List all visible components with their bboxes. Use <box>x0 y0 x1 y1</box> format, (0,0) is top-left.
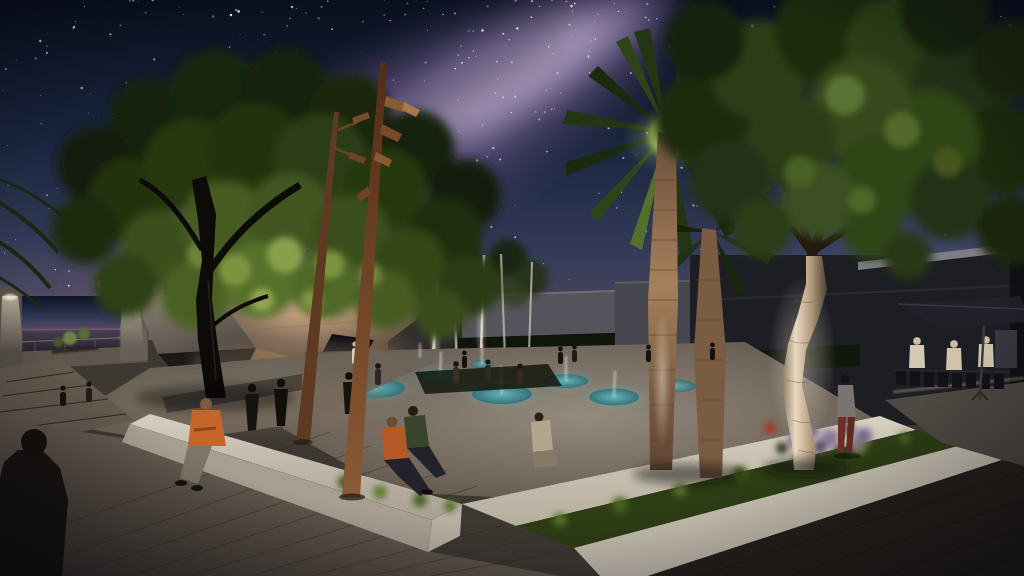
vignette <box>0 0 1024 576</box>
plaza-night-render <box>0 0 1024 576</box>
